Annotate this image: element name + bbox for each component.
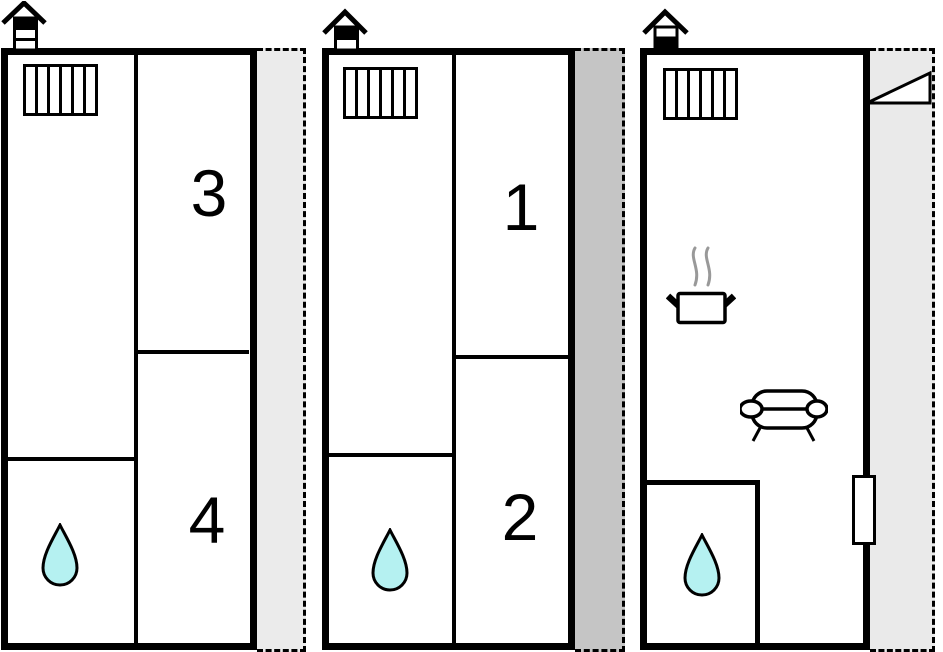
floorplan: 3 4 1 2 xyxy=(0,0,943,652)
house-chimney-icon xyxy=(322,8,372,52)
interior-wall xyxy=(329,453,452,457)
water-drop-icon xyxy=(371,528,409,592)
radiator-icon xyxy=(23,64,98,116)
interior-wall xyxy=(452,355,568,359)
terrace-strip-middle xyxy=(575,48,625,652)
apartment-unit-right xyxy=(640,48,870,650)
water-drop-icon xyxy=(683,533,721,597)
steam-icon xyxy=(706,248,709,285)
sofa-icon xyxy=(740,389,828,442)
apartment-unit-middle: 1 2 xyxy=(322,48,575,650)
terrace-strip-left xyxy=(257,48,306,652)
room-2-label: 2 xyxy=(502,484,539,550)
water-drop-icon xyxy=(41,523,79,587)
cooking-pot-icon xyxy=(666,246,736,326)
room-3-label: 3 xyxy=(191,160,228,226)
interior-wall xyxy=(134,55,138,643)
radiator-icon xyxy=(343,67,418,119)
interior-wall xyxy=(8,457,134,461)
door-swing-icon xyxy=(864,70,934,108)
steam-icon xyxy=(693,248,696,285)
house-chimney-icon xyxy=(640,8,690,52)
room-1-label: 1 xyxy=(503,174,540,240)
radiator-icon xyxy=(663,68,738,120)
interior-wall xyxy=(134,350,249,354)
entrance-door xyxy=(852,475,876,545)
terrace-strip-right xyxy=(870,48,935,652)
apartment-unit-left: 3 4 xyxy=(1,48,257,650)
room-4-label: 4 xyxy=(189,487,226,553)
interior-wall xyxy=(452,55,456,643)
house-chimney-icon xyxy=(1,1,49,53)
